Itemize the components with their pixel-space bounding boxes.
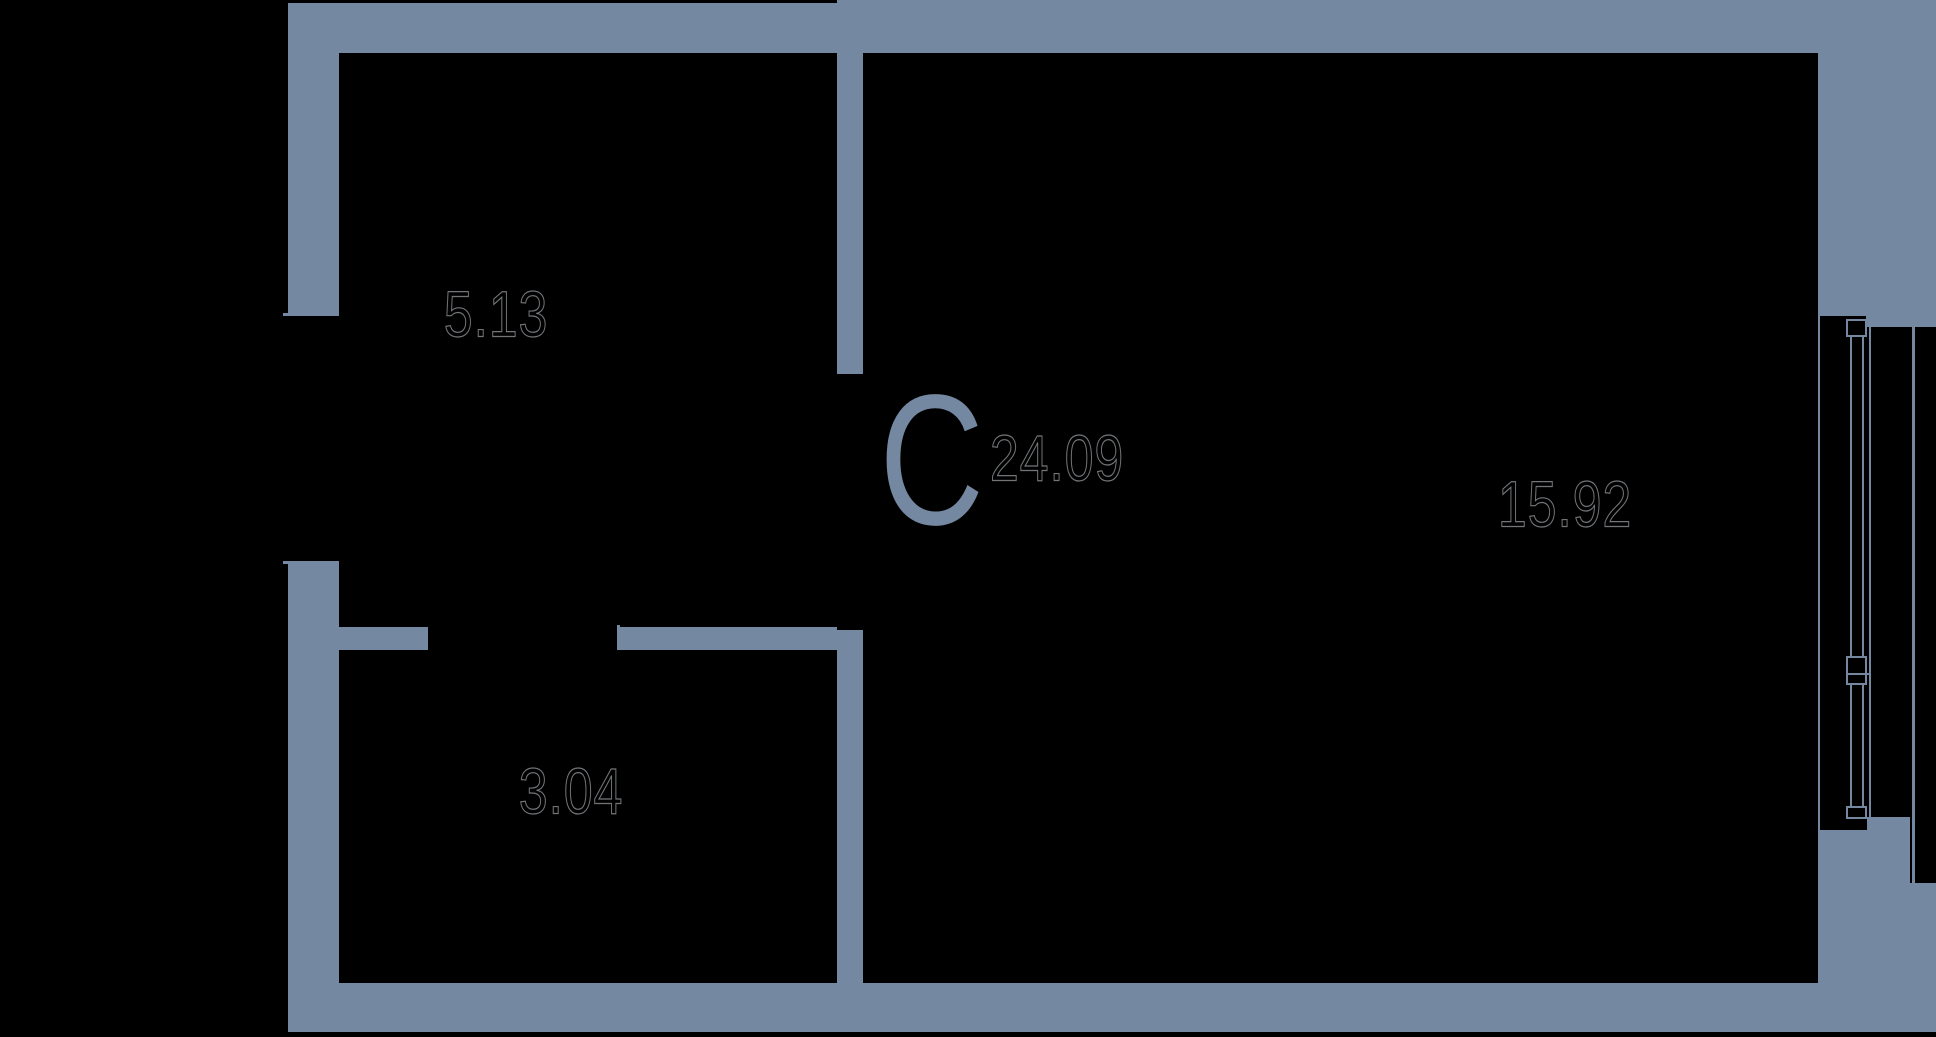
area-label-studio: 24.09	[990, 426, 1124, 491]
window-bottom-cap	[1846, 806, 1867, 819]
window-top-cap	[1846, 319, 1867, 337]
window-mid-cap	[1846, 656, 1867, 685]
wall-right-bottom-mid	[1818, 830, 1910, 883]
wall-bottom	[288, 983, 1936, 1032]
area-label-upper-left: 5.13	[444, 282, 548, 347]
wall-interior-vertical-lower	[837, 630, 863, 983]
wall-interior-horizontal-left	[339, 627, 428, 650]
window-glazing-lower	[1850, 685, 1864, 806]
wall-right-top	[1818, 0, 1936, 316]
wall-top-right	[837, 0, 1936, 53]
wall-interior-vertical-upper	[837, 53, 863, 374]
window-inner-edge-line	[1818, 316, 1820, 830]
window-mid-cap-divider	[1846, 673, 1870, 675]
wall-interior-horizontal-right	[620, 627, 837, 650]
balcony-outer-edge-line	[1912, 326, 1915, 883]
floor-plan: С 24.09 5.13 3.04 15.92	[0, 0, 1936, 1037]
window-mid-line	[1869, 327, 1871, 820]
wall-left-lower	[288, 564, 339, 1032]
wall-right-bottom	[1818, 883, 1936, 1032]
wall-top-left	[288, 3, 837, 53]
area-label-right: 15.92	[1498, 472, 1632, 537]
wall-right-bottom-small	[1867, 817, 1910, 830]
window-glazing-upper	[1850, 337, 1864, 656]
area-label-lower-left: 3.04	[519, 759, 623, 824]
door-cap-left-upper	[283, 313, 339, 316]
wall-right-top-step	[1866, 316, 1936, 327]
room-type-letter: С	[879, 368, 985, 554]
wall-left-upper	[288, 3, 339, 315]
